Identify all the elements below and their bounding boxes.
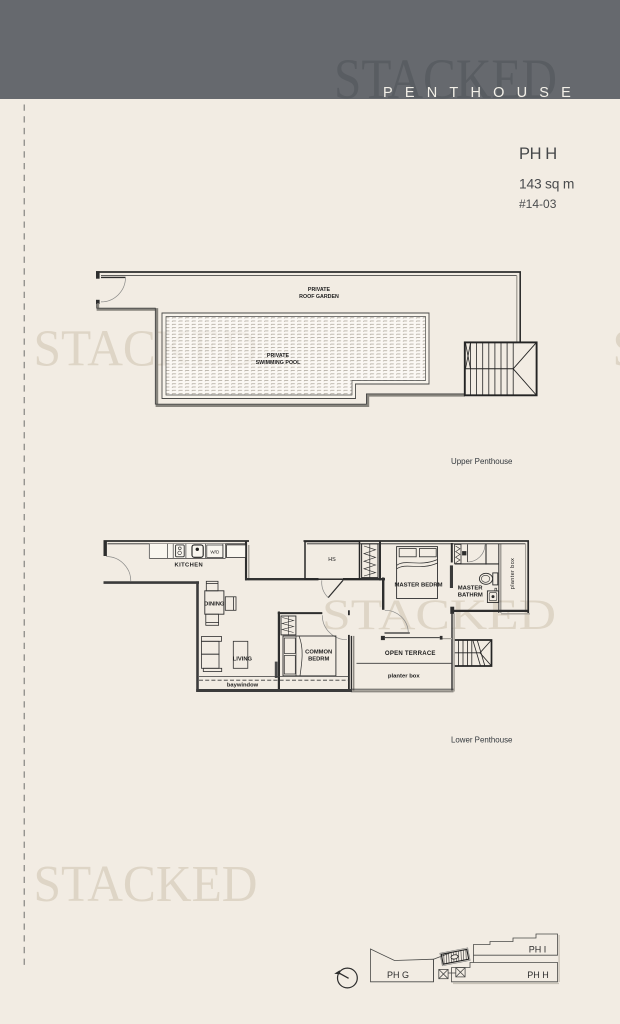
svg-text:SWIMMING POOL: SWIMMING POOL bbox=[256, 360, 301, 366]
svg-text:Lower Penthouse: Lower Penthouse bbox=[451, 736, 513, 745]
svg-text:W/D: W/D bbox=[210, 549, 220, 554]
svg-text:143 sq m: 143 sq m bbox=[519, 177, 574, 192]
svg-text:COMMON: COMMON bbox=[305, 650, 332, 656]
svg-text:ROOF GARDEN: ROOF GARDEN bbox=[299, 294, 339, 300]
svg-text:PRIVATE: PRIVATE bbox=[267, 353, 290, 359]
svg-text:STACKED: STACKED bbox=[334, 48, 557, 111]
svg-text:planter box: planter box bbox=[388, 673, 420, 679]
svg-text:DINING: DINING bbox=[204, 601, 225, 607]
svg-text:HS: HS bbox=[328, 557, 336, 563]
svg-text:STACKED: STACKED bbox=[613, 321, 620, 378]
svg-text:planter box: planter box bbox=[510, 558, 516, 589]
svg-text:PH I: PH I bbox=[529, 945, 547, 955]
svg-text:PH H: PH H bbox=[527, 970, 549, 980]
svg-text:MASTER: MASTER bbox=[458, 586, 484, 592]
svg-text:baywindow: baywindow bbox=[227, 682, 259, 688]
svg-text:KITCHEN: KITCHEN bbox=[175, 563, 204, 569]
svg-text:BATHRM: BATHRM bbox=[458, 593, 483, 599]
svg-text:BEDRM: BEDRM bbox=[308, 657, 329, 663]
svg-text:PH G: PH G bbox=[387, 970, 409, 980]
svg-text:MASTER BEDRM: MASTER BEDRM bbox=[394, 583, 442, 589]
svg-text:#14-03: #14-03 bbox=[519, 197, 557, 211]
svg-text:OPEN TERRACE: OPEN TERRACE bbox=[385, 650, 436, 657]
svg-text:PENTHOUSE: PENTHOUSE bbox=[383, 85, 583, 101]
svg-text:Upper Penthouse: Upper Penthouse bbox=[451, 457, 513, 466]
svg-text:PH H: PH H bbox=[519, 145, 557, 163]
svg-text:LIVING: LIVING bbox=[233, 657, 253, 663]
svg-text:STACKED: STACKED bbox=[34, 856, 258, 913]
svg-text:STACKED: STACKED bbox=[322, 592, 556, 639]
svg-text:PRIVATE: PRIVATE bbox=[308, 287, 331, 293]
